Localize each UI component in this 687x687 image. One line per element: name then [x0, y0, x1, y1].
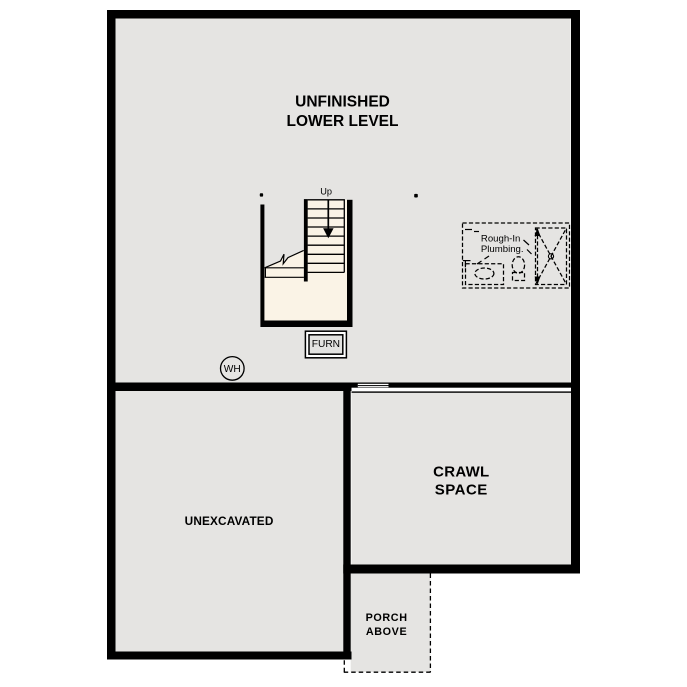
svg-text:UNEXCAVATED: UNEXCAVATED — [185, 514, 274, 528]
svg-text:ABOVE: ABOVE — [366, 626, 407, 638]
svg-text:Up: Up — [320, 186, 332, 196]
svg-text:WH: WH — [224, 364, 241, 375]
svg-text:LOWER LEVEL: LOWER LEVEL — [287, 113, 399, 130]
svg-text:FURN: FURN — [312, 339, 340, 350]
svg-text:UNFINISHED: UNFINISHED — [295, 94, 390, 111]
svg-text:PORCH: PORCH — [366, 612, 408, 624]
svg-text:CRAWL: CRAWL — [433, 463, 489, 480]
svg-text:Plumbing.: Plumbing. — [481, 244, 524, 255]
svg-text:SPACE: SPACE — [435, 482, 488, 499]
